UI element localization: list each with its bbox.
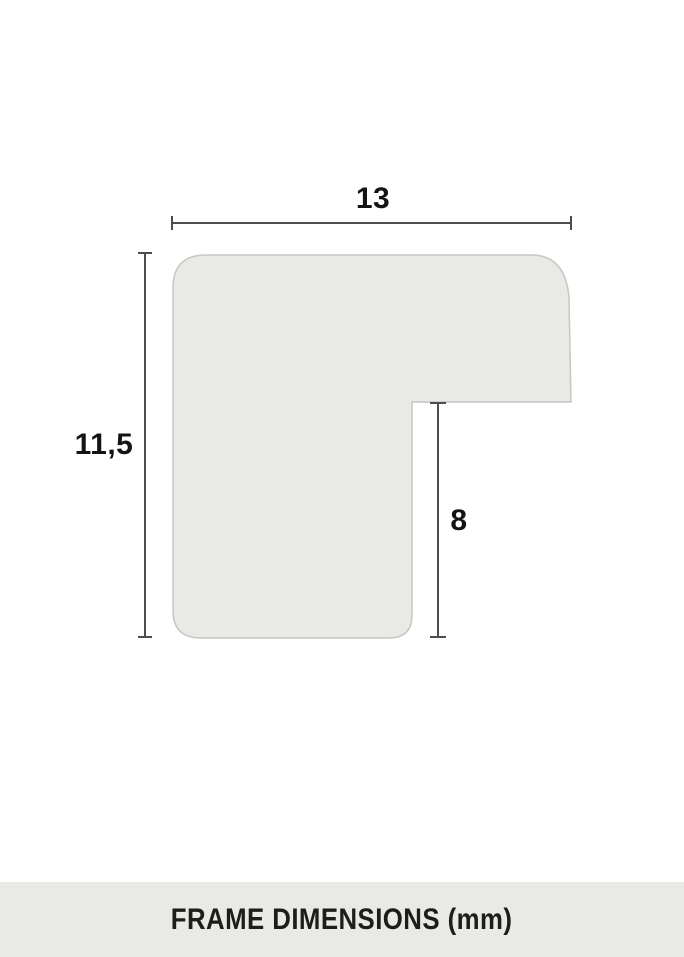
footer-title: FRAME DIMENSIONS (mm) (171, 903, 513, 937)
width-dimension-line (172, 216, 571, 230)
frame-profile-shape (173, 255, 571, 638)
footer-bar: FRAME DIMENSIONS (mm) (0, 882, 684, 957)
height-dimension-label: 11,5 (66, 429, 142, 461)
profile-diagram-canvas (0, 0, 684, 957)
width-dimension-label: 13 (337, 183, 409, 215)
depth-dimension-label: 8 (441, 505, 477, 537)
frame-dimensions-diagram: 13 11,5 8 FRAME DIMENSIONS (mm) (0, 0, 684, 957)
